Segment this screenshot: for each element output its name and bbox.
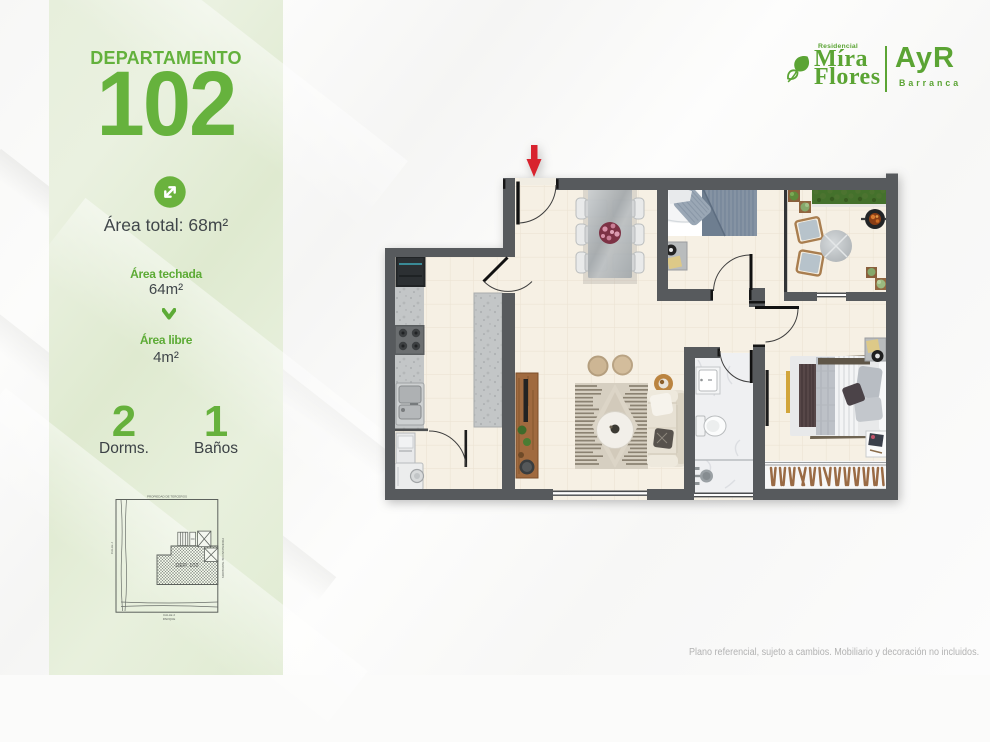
- svg-text:PARQUE: PARQUE: [163, 617, 175, 621]
- svg-text:PROPIEDAD DE TERCEROS: PROPIEDAD DE TERCEROS: [147, 494, 187, 498]
- svg-text:DEP. 102: DEP. 102: [175, 563, 198, 569]
- svg-text:CALLE J: CALLE J: [110, 542, 114, 554]
- svg-text:PROPIEDAD DE TERCEROS: PROPIEDAD DE TERCEROS: [221, 538, 225, 578]
